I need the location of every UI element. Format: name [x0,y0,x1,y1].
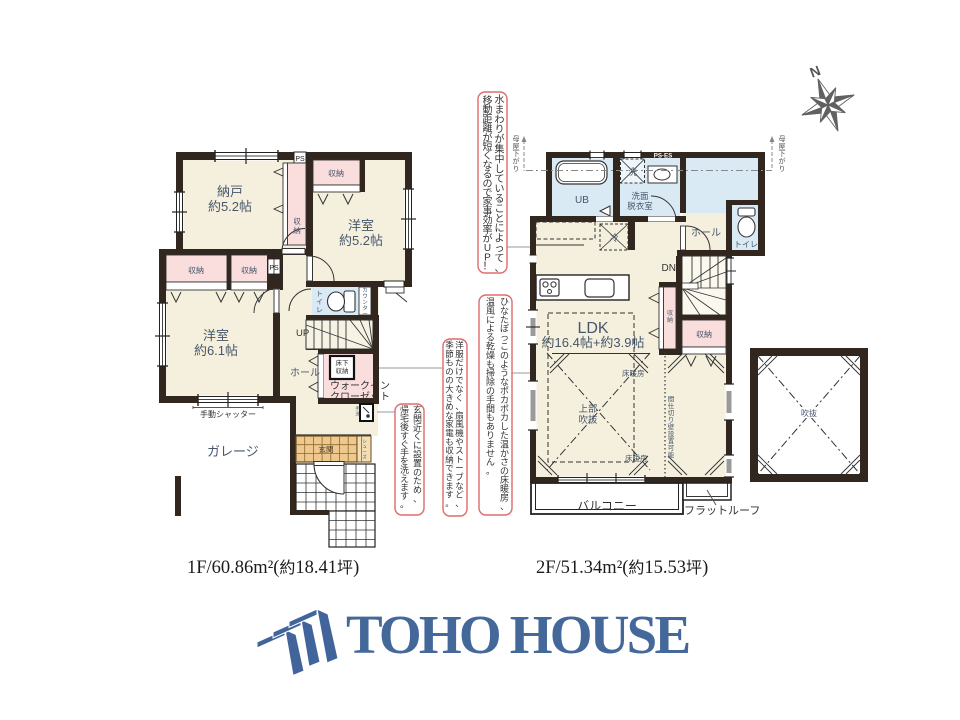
svg-text:洗: 洗 [628,166,637,177]
svg-text:トイレ: トイレ [316,291,323,314]
svg-text:洋室: 洋室 [203,328,229,343]
svg-text:玄関: 玄関 [319,444,334,454]
svg-text:シューズ: シューズ [362,439,367,461]
svg-text:1F/60.86m²(約18.41坪): 1F/60.86m²(約18.41坪) [187,558,359,578]
svg-text:手洗: 手洗 [355,405,360,418]
svg-text:ひなたぼっこのようなポカポカした温かさの床暖房、: ひなたぼっこのようなポカポカした温かさの床暖房、 [500,297,509,512]
svg-text:TOHO HOUSE: TOHO HOUSE [346,604,688,665]
svg-text:母屋下がり: 母屋下がり [513,135,520,173]
svg-text:UP: UP [296,328,309,339]
svg-text:脱衣室: 脱衣室 [627,201,653,211]
svg-text:冷: 冷 [609,232,618,243]
svg-text:収納: 収納 [241,265,257,275]
svg-text:約5.2帖: 約5.2帖 [339,233,383,248]
svg-text:バルコニー: バルコニー [577,499,637,513]
svg-text:約5.2帖: 約5.2帖 [208,199,252,214]
svg-text:トイレ: トイレ [734,240,758,249]
svg-text:ガレージ: ガレージ [207,444,259,459]
svg-text:床下: 床下 [336,358,350,367]
svg-text:移動距離が短くなるので家事効率がUP！: 移動距離が短くなるので家事効率がUP！ [483,94,493,273]
svg-text:吹抜: 吹抜 [578,414,598,426]
svg-text:洗面: 洗面 [631,191,649,201]
svg-text:収納: 収納 [328,168,344,178]
svg-text:ウォークイン: ウォークイン [330,380,390,392]
svg-text:収納: 収納 [696,329,712,339]
svg-text:洋服だけでなく、扇風機やストーブなど、: 洋服だけでなく、扇風機やストーブなど、 [455,340,464,508]
svg-text:手動シャッター: 手動シャッター [200,409,256,419]
svg-text:水まわりが集中していることによって、: 水まわりが集中していることによって、 [495,94,505,274]
svg-text:DN: DN [662,263,676,274]
svg-text:PS: PS [295,156,305,163]
svg-text:PS·ES: PS·ES [654,153,673,160]
svg-text:季節ものの大きめな家電も収納できます。: 季節ものの大きめな家電も収納できます。 [445,340,454,508]
svg-text:カウンター: カウンター [362,287,368,318]
svg-text:約6.1帖: 約6.1帖 [194,343,238,358]
svg-text:帰宅後すぐ手を洗えます。: 帰宅後すぐ手を洗えます。 [400,404,409,510]
svg-text:収納: 収納 [293,217,301,235]
svg-text:上部: 上部 [578,403,597,415]
svg-text:2F/51.34m²(約15.53坪): 2F/51.34m²(約15.53坪) [536,558,708,578]
svg-text:約16.4帖+約3.9帖: 約16.4帖+約3.9帖 [542,335,645,350]
svg-text:母屋下がり: 母屋下がり [779,135,786,173]
svg-text:吹抜: 吹抜 [801,408,817,418]
svg-text:ホール: ホール [290,367,320,379]
svg-text:UB: UB [575,195,589,206]
svg-text:温風による乾燥も掃除の手間もありません。: 温風による乾燥も掃除の手間もありません。 [486,297,495,476]
svg-text:床暖房: 床暖房 [622,368,645,378]
svg-text:玄関近くに設置のため、: 玄関近くに設置のため、 [413,404,422,504]
svg-text:フラットルーフ: フラットルーフ [684,505,760,517]
svg-text:ホール: ホール [691,227,721,239]
svg-text:間仕切り壁設置可能: 間仕切り壁設置可能 [668,395,675,459]
svg-text:洋室: 洋室 [348,218,374,233]
svg-text:納戸: 納戸 [217,184,243,199]
svg-text:収納: 収納 [188,265,204,275]
svg-text:収納: 収納 [336,366,349,375]
